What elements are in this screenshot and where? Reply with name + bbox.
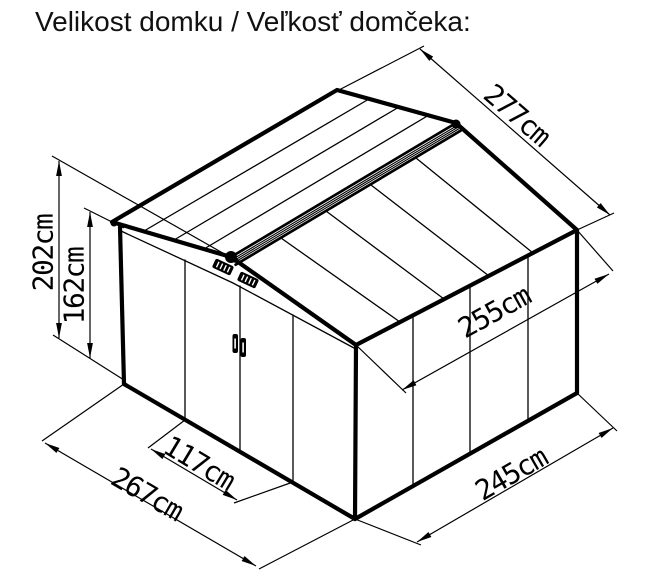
door-handles — [233, 334, 247, 357]
ridge-back-knot — [452, 120, 461, 129]
dimension-roof-depth: 255cm — [356, 230, 613, 393]
shed-dimension-drawing-page: Velikost domku / Veľkosť domčeka: — [0, 0, 652, 586]
shed-isometric-diagram: 202cm 162cm 277cm 255cm 245cm — [0, 0, 652, 586]
dimension-label-base-depth: 245cm — [469, 440, 553, 507]
ridge-front-knot — [225, 251, 237, 263]
dimension-wall-height: 162cm — [58, 208, 125, 358]
dimension-label-total-height: 202cm — [27, 214, 60, 291]
front-left-corner-post — [120, 227, 124, 384]
dimension-label-roof-width: 277cm — [477, 77, 557, 153]
dimension-label-base-width: 267cm — [105, 461, 189, 528]
dimension-label-door-width: 117cm — [158, 429, 241, 497]
dimension-base-depth: 245cm — [355, 393, 617, 545]
dimension-label-wall-height: 162cm — [58, 247, 91, 324]
front-right-corner-post — [355, 345, 356, 519]
front-gable-trim-line — [121, 231, 354, 348]
